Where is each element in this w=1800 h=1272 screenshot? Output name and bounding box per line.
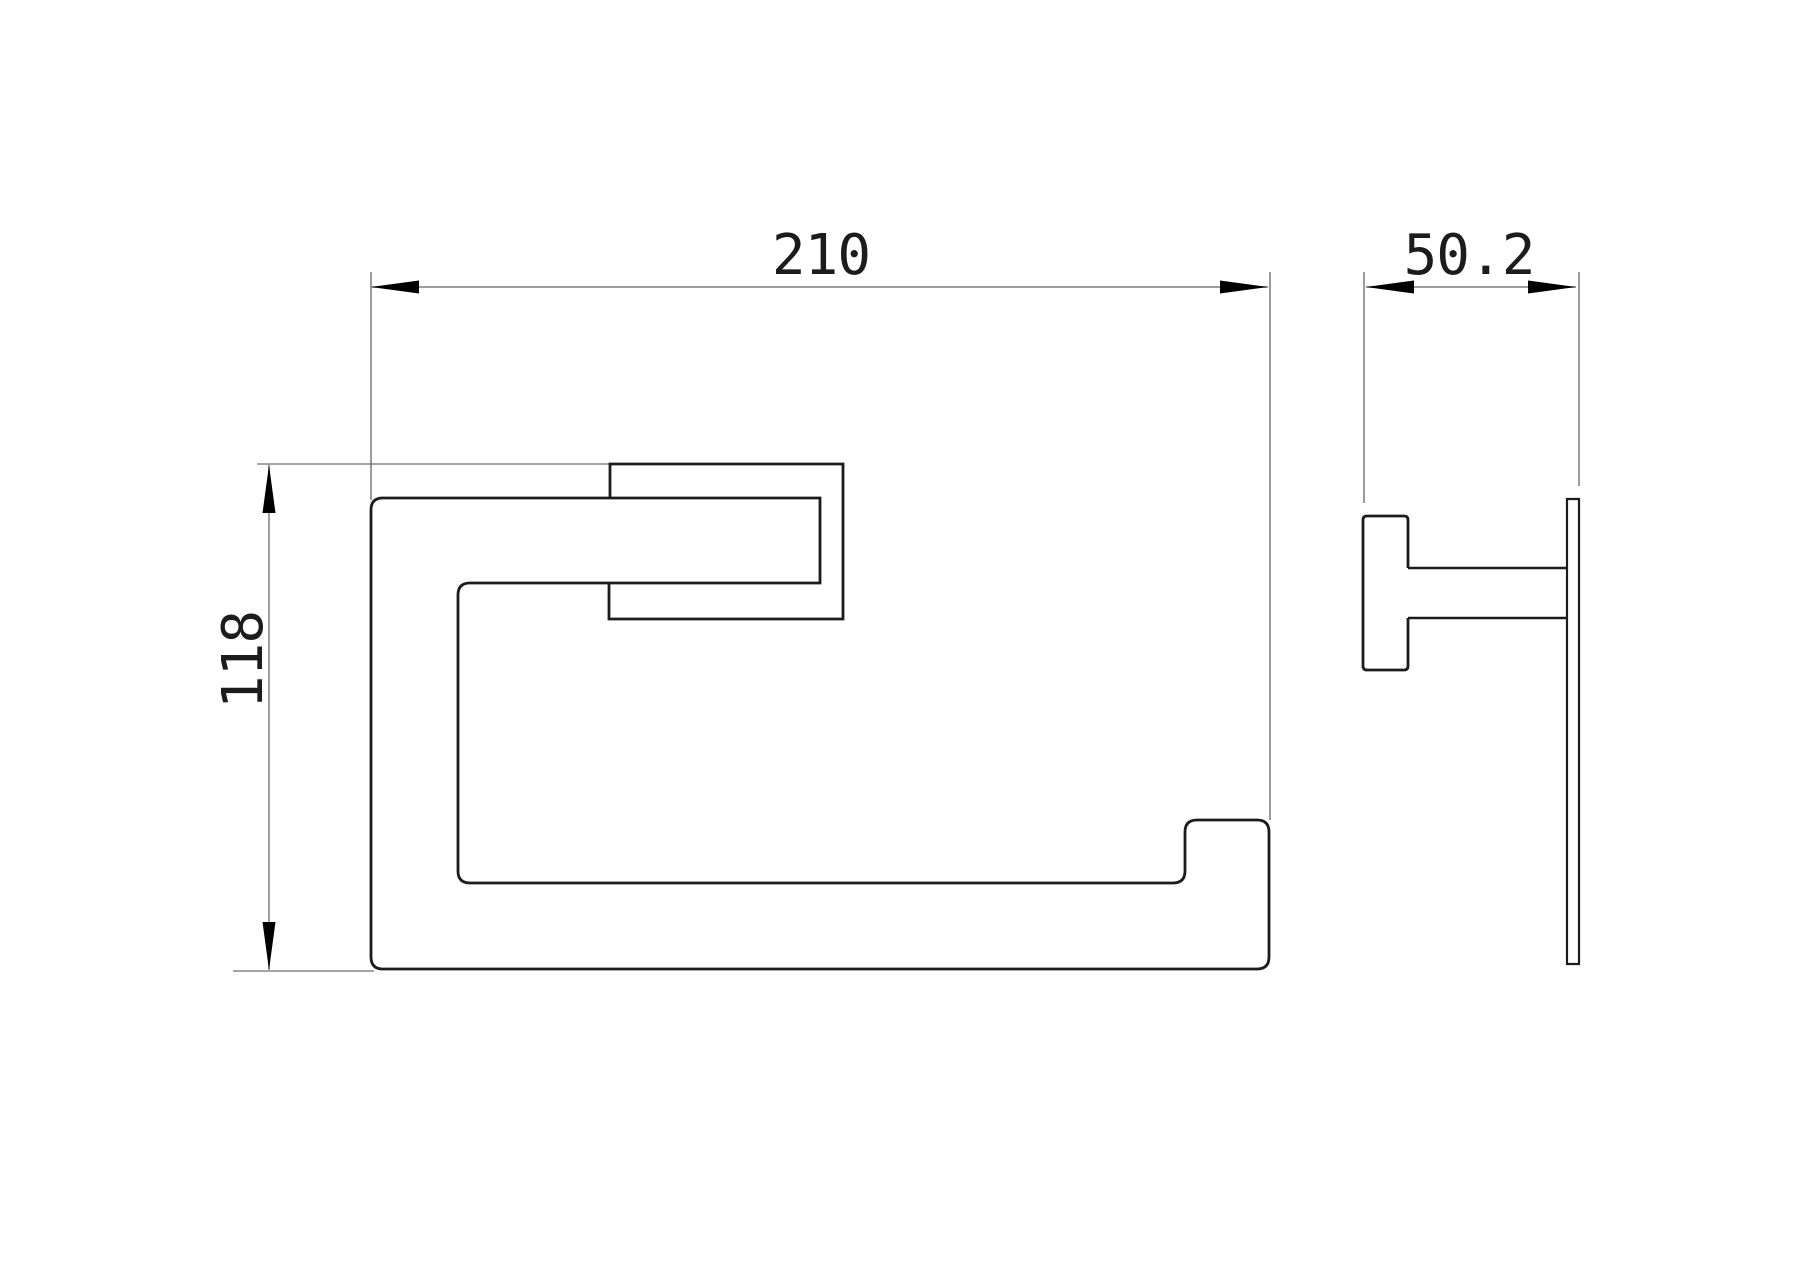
- dim-label-overall-width: 210: [772, 223, 870, 288]
- dimension-annotations: [233, 272, 1579, 971]
- arrowhead-118-down: [263, 922, 276, 970]
- arrowhead-210-left: [371, 281, 419, 294]
- drawing-sheet: 210 118 50.2: [0, 0, 1800, 1272]
- dim-label-overall-height: 118: [211, 611, 276, 709]
- technical-drawing: 210 118 50.2: [0, 0, 1800, 1272]
- dim-label-overall-depth: 50.2: [1404, 223, 1535, 288]
- wall-bracket-outline: [1363, 516, 1408, 670]
- bar-side-profile: [1567, 499, 1579, 964]
- hook-end-outline: [609, 464, 843, 619]
- arrowhead-118-up: [263, 465, 276, 513]
- arrowhead-210-right: [1220, 281, 1268, 294]
- arrowhead-50-right: [1528, 281, 1576, 294]
- dimension-labels: 210 118 50.2: [211, 223, 1534, 709]
- front-view: [371, 464, 1269, 969]
- bar-outline: [371, 498, 1269, 969]
- side-view: [1363, 499, 1579, 964]
